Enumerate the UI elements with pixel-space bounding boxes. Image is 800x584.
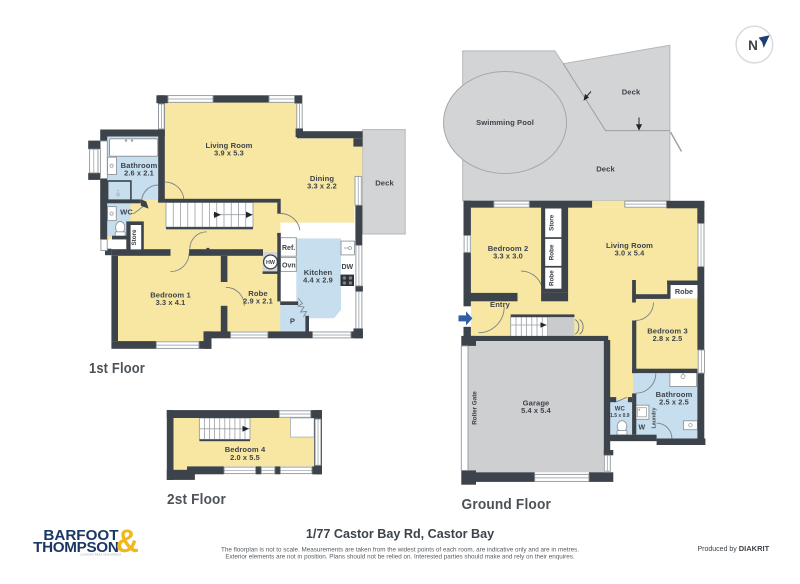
svg-text:Roller Gate: Roller Gate: [472, 391, 479, 425]
svg-text:Entry: Entry: [490, 300, 511, 309]
svg-text:3.0 x 5.4: 3.0 x 5.4: [615, 249, 645, 258]
svg-text:2st Floor: 2st Floor: [167, 491, 226, 508]
svg-text:Store: Store: [548, 214, 555, 231]
svg-text:1st Floor: 1st Floor: [89, 360, 145, 377]
svg-text:LICENSED REAA 2008 MREINZ: LICENSED REAA 2008 MREINZ: [80, 554, 122, 557]
svg-text:Exterior elements are not in p: Exterior elements are not in position. P…: [225, 553, 575, 560]
svg-text:4.4 x 2.9: 4.4 x 2.9: [303, 276, 333, 285]
svg-text:1/77 Castor Bay Rd, Castor Bay: 1/77 Castor Bay Rd, Castor Bay: [306, 527, 494, 541]
svg-text:Deck: Deck: [622, 88, 641, 97]
svg-text:Ref.: Ref.: [282, 245, 295, 252]
svg-text:3.9 x 5.3: 3.9 x 5.3: [214, 149, 244, 158]
svg-text:Store: Store: [131, 229, 138, 246]
svg-text:Deck: Deck: [375, 179, 394, 188]
svg-text:N: N: [748, 38, 758, 53]
svg-text:Robe: Robe: [548, 244, 555, 260]
svg-text:3.3 x 4.1: 3.3 x 4.1: [156, 298, 186, 307]
svg-text:The floorplan is not to scale.: The floorplan is not to scale. Measureme…: [221, 546, 579, 553]
svg-text:WC: WC: [615, 407, 626, 413]
svg-text:Deck: Deck: [596, 165, 615, 174]
svg-text:5.4 x 5.4: 5.4 x 5.4: [521, 406, 551, 415]
svg-text:3.3 x 2.2: 3.3 x 2.2: [307, 182, 337, 191]
svg-text:2.5 x 2.5: 2.5 x 2.5: [659, 398, 689, 407]
svg-text:2.9 x 2.1: 2.9 x 2.1: [243, 296, 273, 305]
svg-text:DW: DW: [342, 264, 354, 271]
svg-text:2.8 x 2.5: 2.8 x 2.5: [653, 334, 683, 343]
svg-text:Laundry: Laundry: [652, 408, 658, 429]
svg-text:Ground Floor: Ground Floor: [462, 496, 552, 513]
svg-text:HW: HW: [266, 260, 276, 266]
svg-text:1.5 x 0.9: 1.5 x 0.9: [610, 413, 630, 419]
svg-text:3.3 x 3.0: 3.3 x 3.0: [493, 251, 523, 260]
svg-text:2.6 x 2.1: 2.6 x 2.1: [124, 169, 154, 178]
svg-text:Robe: Robe: [548, 270, 555, 286]
svg-text:Swimming Pool: Swimming Pool: [476, 118, 534, 127]
svg-text:Produced by DIAKRIT: Produced by DIAKRIT: [698, 544, 770, 553]
svg-text:Ovn: Ovn: [282, 262, 296, 269]
svg-text:WC: WC: [120, 207, 133, 216]
svg-text:P: P: [290, 317, 295, 326]
svg-text:Robe: Robe: [675, 287, 693, 296]
svg-text:W: W: [638, 425, 645, 432]
svg-text:2.0 x 5.5: 2.0 x 5.5: [230, 453, 260, 462]
